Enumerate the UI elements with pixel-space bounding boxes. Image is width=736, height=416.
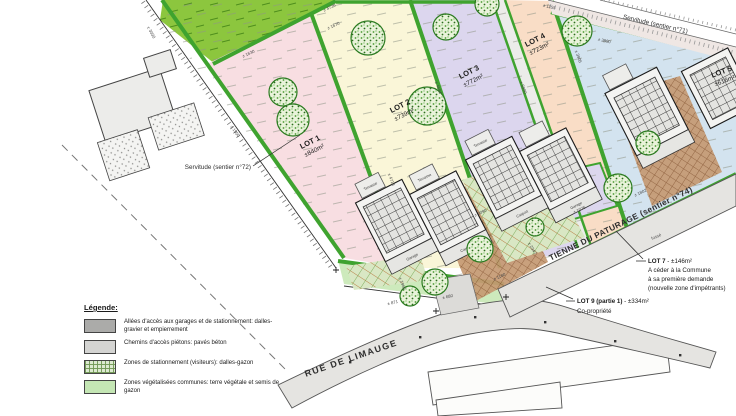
legend-label: Zones de stationnement (visiteurs): dall… (124, 360, 253, 368)
svg-text:A céder à la Commune: A céder à la Commune (648, 267, 711, 274)
legend-swatch-paths (84, 340, 116, 354)
tree-icon (269, 78, 297, 106)
tree-icon (526, 218, 544, 236)
legend-swatch-green-zones (84, 380, 116, 394)
tree-icon (467, 236, 493, 262)
legend-label: Allées d'accès aux garages et de station… (124, 319, 280, 334)
tree-icon (604, 174, 632, 202)
legend-item: Allées d'accès aux garages et de station… (84, 319, 280, 334)
tree-icon (351, 21, 385, 55)
legend-label: Chemins d'accès piétons: pavés béton (124, 340, 227, 348)
legend-item: Chemins d'accès piétons: pavés béton (84, 340, 280, 354)
svg-text:LOT 7 - ±146m²: LOT 7 - ±146m² (648, 258, 692, 265)
svg-text:(nouvelle zone d'impétrants): (nouvelle zone d'impétrants) (648, 285, 726, 292)
svg-text:LOT 9 (partie 1) - ±334m²: LOT 9 (partie 1) - ±334m² (577, 298, 649, 305)
svg-text:à sa première demande: à sa première demande (648, 276, 714, 283)
legend-label: Zones végétalisées communes: terre végét… (124, 380, 280, 395)
tree-icon (277, 104, 309, 136)
tree-icon (562, 16, 592, 46)
legend-title: Légende: (84, 303, 280, 312)
legend-swatch-driveways (84, 319, 116, 333)
svg-text:Co-propriété: Co-propriété (577, 308, 612, 315)
tree-icon (636, 131, 660, 155)
tree-icon (433, 14, 459, 40)
tree-icon (422, 269, 448, 295)
legend-item: Zones de stationnement (visiteurs): dall… (84, 360, 280, 374)
legend-swatch-parking (84, 360, 116, 374)
site-plan: Terrasse Terrasse Garage Carport Terrass… (0, 0, 736, 416)
legend-item: Zones végétalisées communes: terre végét… (84, 380, 280, 395)
servitude-72-label: Servitude (sentier n°72) (185, 163, 251, 171)
legend: Légende: Allées d'accès aux garages et d… (84, 303, 280, 401)
